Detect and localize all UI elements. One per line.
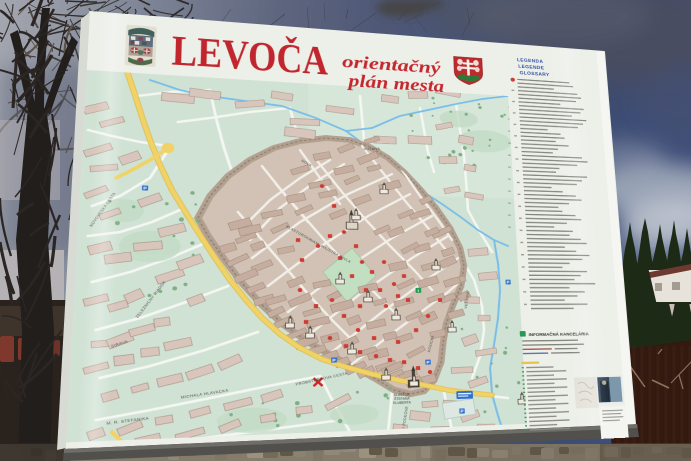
svg-text:i: i (418, 289, 419, 294)
svg-text:RUZOVA: RUZOVA (363, 147, 380, 151)
svg-text:KLUBERTA: KLUBERTA (393, 401, 412, 405)
